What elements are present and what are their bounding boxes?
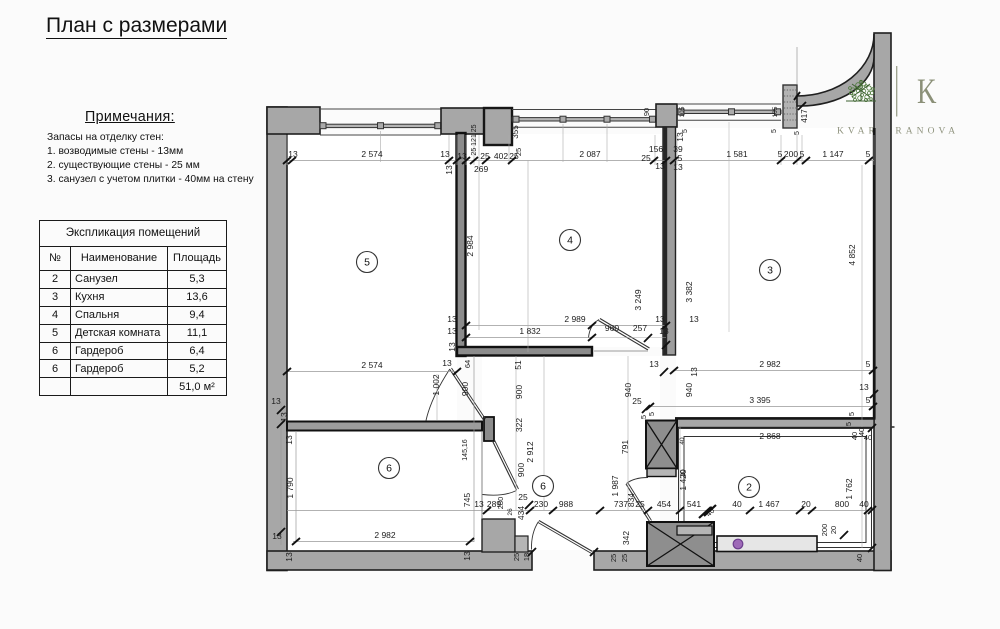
svg-text:13: 13 — [655, 314, 665, 324]
svg-text:940: 940 — [623, 383, 633, 397]
svg-text:5: 5 — [639, 415, 648, 419]
svg-text:257: 257 — [633, 323, 647, 333]
svg-text:355: 355 — [511, 125, 520, 139]
svg-text:1 762: 1 762 — [844, 478, 854, 500]
svg-text:4 852: 4 852 — [847, 244, 857, 266]
svg-text:25: 25 — [641, 153, 651, 163]
svg-text:13: 13 — [673, 162, 683, 172]
svg-text:5: 5 — [866, 359, 871, 369]
svg-text:269: 269 — [474, 164, 488, 174]
svg-text:5: 5 — [778, 149, 783, 159]
svg-text:13: 13 — [442, 358, 452, 368]
svg-text:25: 25 — [632, 396, 642, 406]
svg-text:2 989: 2 989 — [564, 314, 586, 324]
svg-text:KVARTIRANOVA: KVARTIRANOVA — [837, 127, 959, 137]
svg-text:13: 13 — [675, 132, 685, 142]
svg-text:434: 434 — [516, 506, 526, 520]
svg-text:40: 40 — [679, 437, 686, 445]
svg-text:322: 322 — [514, 418, 524, 432]
svg-text:156: 156 — [649, 144, 663, 154]
svg-text:1 002: 1 002 — [431, 374, 441, 396]
svg-text:40: 40 — [850, 432, 859, 440]
svg-text:5: 5 — [866, 395, 871, 405]
svg-text:64: 64 — [463, 360, 472, 368]
svg-text:105: 105 — [772, 106, 779, 117]
svg-text:5: 5 — [794, 131, 801, 135]
svg-text:90: 90 — [642, 108, 651, 116]
svg-text:13: 13 — [447, 342, 457, 352]
svg-text:1 987: 1 987 — [610, 475, 620, 497]
svg-text:25: 25 — [514, 148, 523, 156]
svg-text:342: 342 — [621, 531, 631, 545]
svg-text:40: 40 — [732, 499, 742, 509]
svg-text:4: 4 — [567, 235, 573, 247]
svg-text:5: 5 — [647, 412, 656, 416]
svg-text:25 121 25: 25 121 25 — [471, 124, 478, 155]
svg-text:900: 900 — [460, 382, 470, 396]
svg-text:40: 40 — [864, 433, 872, 442]
svg-text:13: 13 — [447, 326, 457, 336]
svg-text:25: 25 — [635, 499, 645, 509]
svg-text:737: 737 — [614, 499, 628, 509]
svg-text:5: 5 — [866, 149, 871, 159]
svg-text:2 868: 2 868 — [759, 431, 781, 441]
svg-text:900: 900 — [514, 385, 524, 399]
svg-text:1 832: 1 832 — [519, 326, 541, 336]
svg-text:1 581: 1 581 — [726, 149, 748, 159]
svg-text:900: 900 — [516, 463, 526, 477]
svg-text:25: 25 — [609, 554, 618, 562]
svg-text:800: 800 — [835, 499, 849, 509]
svg-text:5: 5 — [364, 257, 370, 269]
svg-text:960: 960 — [605, 323, 619, 333]
svg-text:26: 26 — [507, 508, 514, 516]
svg-text:230: 230 — [534, 499, 548, 509]
svg-text:K: K — [917, 71, 937, 111]
svg-text:745: 745 — [462, 493, 472, 507]
svg-text:3 395: 3 395 — [749, 395, 771, 405]
svg-text:40: 40 — [859, 499, 869, 509]
svg-text:3 249: 3 249 — [633, 289, 643, 311]
svg-text:25: 25 — [620, 554, 629, 562]
svg-text:5: 5 — [847, 412, 856, 416]
svg-text:402: 402 — [494, 151, 508, 161]
svg-text:105: 105 — [679, 106, 686, 117]
svg-text:51: 51 — [513, 360, 523, 370]
svg-text:200: 200 — [820, 524, 829, 537]
svg-text:2 574: 2 574 — [361, 360, 383, 370]
svg-text:2: 2 — [746, 482, 752, 494]
svg-text:2 982: 2 982 — [374, 530, 396, 540]
svg-text:454: 454 — [657, 499, 671, 509]
svg-text:13: 13 — [462, 551, 472, 561]
svg-text:940: 940 — [684, 383, 694, 397]
svg-text:20: 20 — [829, 526, 838, 534]
svg-text:280: 280 — [496, 497, 505, 510]
svg-text:5: 5 — [771, 129, 778, 133]
svg-text:25: 25 — [518, 492, 528, 502]
svg-text:13: 13 — [859, 382, 869, 392]
svg-text:791: 791 — [620, 440, 630, 454]
svg-text:13: 13 — [444, 165, 454, 175]
svg-text:5: 5 — [844, 422, 853, 426]
svg-text:2 087: 2 087 — [579, 149, 601, 159]
svg-text:13: 13 — [649, 359, 659, 369]
svg-text:2 982: 2 982 — [759, 359, 781, 369]
svg-text:13: 13 — [689, 314, 699, 324]
svg-text:6: 6 — [540, 481, 546, 493]
svg-text:13: 13 — [271, 396, 281, 406]
svg-text:2 574: 2 574 — [361, 149, 383, 159]
svg-text:541: 541 — [687, 499, 701, 509]
svg-text:1 790: 1 790 — [285, 477, 295, 499]
svg-text:1 147: 1 147 — [822, 149, 844, 159]
svg-text:417: 417 — [800, 109, 809, 123]
svg-text:988: 988 — [559, 499, 573, 509]
svg-text:13: 13 — [447, 314, 457, 324]
svg-text:13: 13 — [284, 552, 294, 562]
svg-text:3 382: 3 382 — [684, 281, 694, 303]
svg-text:40: 40 — [855, 554, 864, 562]
svg-text:1 420: 1 420 — [678, 469, 688, 491]
svg-text:145,16: 145,16 — [462, 439, 469, 461]
svg-text:13: 13 — [474, 499, 484, 509]
svg-text:200: 200 — [784, 149, 798, 159]
svg-text:2 912: 2 912 — [525, 441, 535, 463]
svg-text:25: 25 — [512, 553, 521, 561]
svg-text:13: 13 — [284, 435, 294, 445]
svg-text:13: 13 — [689, 367, 699, 377]
svg-text:3: 3 — [767, 265, 773, 277]
svg-text:1 467: 1 467 — [758, 499, 780, 509]
svg-text:13: 13 — [440, 149, 450, 159]
svg-text:2 984: 2 984 — [465, 235, 475, 257]
svg-text:6: 6 — [386, 463, 392, 475]
